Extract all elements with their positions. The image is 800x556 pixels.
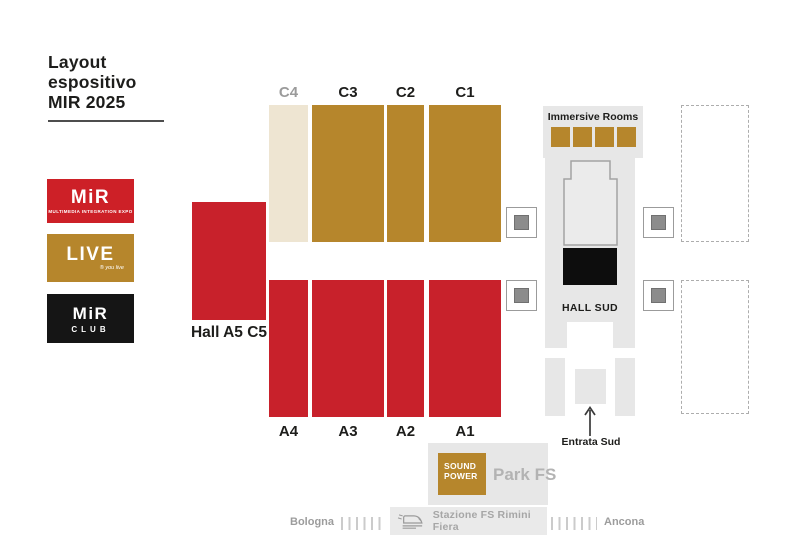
dashed-area-bottom bbox=[681, 280, 749, 414]
title-underline bbox=[48, 120, 164, 122]
live-logo-wordmark: LIVE bbox=[66, 245, 114, 264]
hall-block-a1 bbox=[429, 280, 501, 417]
live-logo-tagline: ® you live bbox=[100, 265, 124, 271]
south-entrance-block bbox=[575, 369, 606, 404]
stage-block bbox=[563, 248, 617, 285]
building-footprint-outline bbox=[560, 157, 622, 249]
immersive-rooms-area: Immersive Rooms bbox=[543, 106, 643, 158]
train-icon bbox=[397, 511, 426, 531]
hall-sud-doorway bbox=[567, 322, 613, 349]
railway-track-icon bbox=[341, 517, 385, 530]
immersive-room-4 bbox=[617, 127, 636, 147]
hall-label-c1: C1 bbox=[429, 84, 501, 101]
pillar-dot bbox=[651, 288, 666, 303]
title-line-3: MIR 2025 bbox=[48, 92, 137, 112]
immersive-rooms-label: Immersive Rooms bbox=[543, 111, 643, 123]
hall-block-c3 bbox=[312, 105, 384, 242]
club-logo-tagline: CLUB bbox=[71, 325, 109, 334]
hall-label-a2: A2 bbox=[387, 423, 424, 440]
hall-label-a5c5: Hall A5 C5 bbox=[190, 324, 268, 342]
pillar-dot bbox=[514, 288, 529, 303]
hall-block-a5c5 bbox=[192, 202, 266, 320]
mir-expo-logo: MiR MULTIMEDIA INTEGRATION EXPO bbox=[47, 179, 134, 223]
railway-east-label: Ancona bbox=[604, 516, 644, 528]
corridor-leg-right bbox=[615, 358, 635, 416]
mir-live-logo: LIVE ® you live bbox=[47, 234, 134, 282]
station-box: Stazione FS Rimini Fiera bbox=[390, 507, 547, 535]
mir-logo-wordmark: MiR bbox=[71, 188, 110, 207]
sound-power-logo: SOUND POWER bbox=[438, 453, 486, 495]
club-logo-wordmark: MiR bbox=[73, 304, 109, 323]
mir-2025-expo-layout-map: Layout espositivo MIR 2025 MiR MULTIMEDI… bbox=[0, 0, 800, 556]
pillar-marker-icon bbox=[506, 280, 537, 311]
corridor-leg-left bbox=[545, 358, 565, 416]
station-label: Stazione FS Rimini Fiera bbox=[433, 509, 547, 533]
hall-block-c4 bbox=[269, 105, 308, 242]
immersive-rooms-row bbox=[543, 127, 643, 147]
entrata-sud-label: Entrata Sud bbox=[544, 436, 638, 448]
hall-label-c3: C3 bbox=[312, 84, 384, 101]
dashed-area-top bbox=[681, 105, 749, 242]
mir-club-logo: MiR CLUB bbox=[47, 294, 134, 343]
hall-block-c2 bbox=[387, 105, 424, 242]
arrow-up-icon bbox=[583, 404, 597, 438]
pillar-dot bbox=[651, 215, 666, 230]
title-line-1: Layout bbox=[48, 52, 137, 72]
page-title: Layout espositivo MIR 2025 bbox=[48, 52, 137, 112]
pillar-dot bbox=[514, 215, 529, 230]
pillar-marker-icon bbox=[643, 280, 674, 311]
hall-sud-label: HALL SUD bbox=[545, 302, 635, 314]
mir-logo-tagline: MULTIMEDIA INTEGRATION EXPO bbox=[48, 209, 132, 214]
hall-block-a4 bbox=[269, 280, 308, 417]
railway-west-label: Bologna bbox=[290, 516, 334, 528]
hall-label-a4: A4 bbox=[269, 423, 308, 440]
hall-label-a3: A3 bbox=[312, 423, 384, 440]
hall-block-c1 bbox=[429, 105, 501, 242]
immersive-room-3 bbox=[595, 127, 614, 147]
immersive-room-1 bbox=[551, 127, 570, 147]
pillar-marker-icon bbox=[643, 207, 674, 238]
hall-label-c2: C2 bbox=[387, 84, 424, 101]
sound-power-line-1: SOUND bbox=[444, 461, 486, 471]
immersive-room-2 bbox=[573, 127, 592, 147]
hall-block-a3 bbox=[312, 280, 384, 417]
park-fs-label: Park FS bbox=[493, 465, 556, 485]
railway-track-icon bbox=[551, 517, 597, 530]
sound-power-line-2: POWER bbox=[444, 471, 486, 481]
hall-label-c4: C4 bbox=[269, 84, 308, 101]
hall-block-a2 bbox=[387, 280, 424, 417]
pillar-marker-icon bbox=[506, 207, 537, 238]
title-line-2: espositivo bbox=[48, 72, 137, 92]
hall-label-a1: A1 bbox=[429, 423, 501, 440]
